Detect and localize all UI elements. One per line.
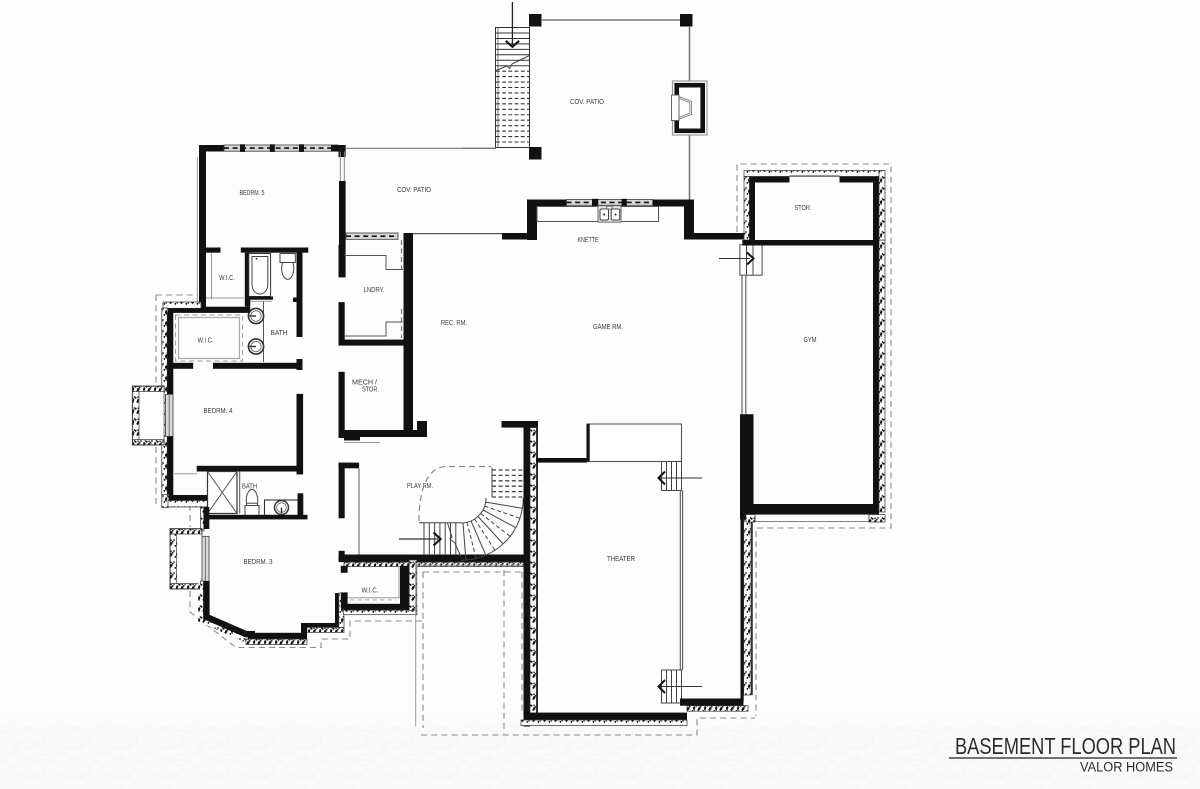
svg-text:BATH: BATH — [242, 483, 257, 490]
svg-text:KNETTE: KNETTE — [578, 237, 599, 244]
svg-text:W.I.C.: W.I.C. — [362, 587, 379, 594]
svg-text:COV. PATIO: COV. PATIO — [570, 99, 604, 106]
svg-text:GYM: GYM — [804, 337, 817, 344]
svg-text:MECH /: MECH / — [352, 380, 377, 387]
svg-text:VALOR HOMES: VALOR HOMES — [1080, 760, 1173, 775]
svg-text:BEDRM. 3: BEDRM. 3 — [244, 559, 273, 566]
svg-text:BASEMENT FLOOR PLAN: BASEMENT FLOOR PLAN — [955, 733, 1176, 759]
svg-text:PLAY RM.: PLAY RM. — [407, 483, 433, 490]
svg-text:BATH: BATH — [271, 330, 288, 337]
svg-text:GAME RM.: GAME RM. — [593, 324, 623, 331]
svg-text:THEATER: THEATER — [607, 556, 635, 563]
svg-text:BEDRM. 5: BEDRM. 5 — [240, 190, 265, 197]
svg-text:STOR.: STOR. — [795, 205, 812, 212]
svg-text:STOR.: STOR. — [362, 387, 379, 394]
svg-text:COV. PATIO: COV. PATIO — [397, 187, 431, 194]
svg-text:BEDRM. 4: BEDRM. 4 — [204, 408, 233, 415]
svg-text:W.I.C.: W.I.C. — [219, 275, 235, 282]
svg-text:W.I.C.: W.I.C. — [198, 337, 214, 344]
svg-text:REC. RM.: REC. RM. — [441, 320, 467, 327]
svg-text:LNDRY.: LNDRY. — [364, 287, 385, 294]
